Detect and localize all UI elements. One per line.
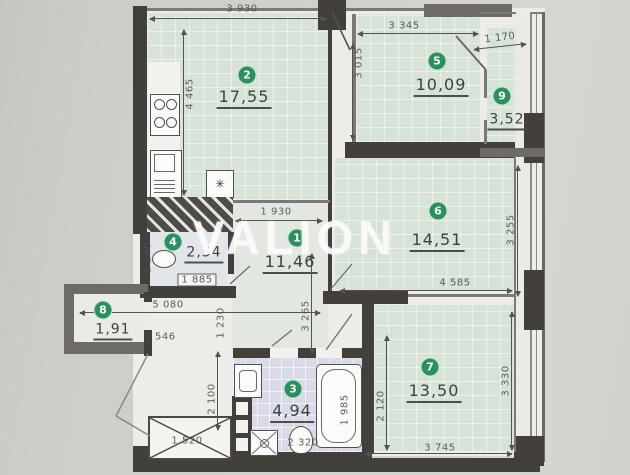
wall	[362, 302, 374, 454]
dimension-label: 5 080	[152, 300, 183, 311]
wall	[233, 200, 330, 203]
dimension-line	[358, 33, 478, 34]
wall	[408, 294, 515, 297]
wc-toilet-icon	[152, 250, 176, 268]
room-7-area: 13,50	[407, 381, 462, 403]
room-6-badge: 6	[429, 202, 448, 221]
room-9-badge: 9	[493, 87, 512, 106]
washing-machine-icon	[250, 430, 278, 456]
dimension-label: 1 885	[177, 274, 216, 287]
dimension-line	[340, 290, 512, 291]
window-glazing	[530, 12, 532, 462]
door-opening	[270, 348, 298, 358]
dimension-label: 3 265	[301, 300, 312, 331]
room-3-area: 4,94	[270, 401, 314, 423]
bathroom-sink-icon	[234, 364, 262, 398]
dimension-line	[80, 312, 320, 313]
dimension-label: 3 745	[424, 443, 455, 454]
wall	[64, 284, 74, 350]
wall	[480, 148, 544, 157]
dimension-label: 2 120	[376, 390, 387, 421]
wall	[64, 284, 148, 294]
dimension-label: 3 330	[501, 365, 512, 396]
room-2-area: 17,55	[217, 87, 272, 109]
dimension-label: 2 320	[287, 438, 318, 449]
dimension-label: 1 240	[143, 242, 154, 273]
wall	[368, 458, 540, 472]
dimension-label: 1 230	[216, 307, 227, 338]
dimension-line	[183, 30, 184, 195]
wall	[524, 270, 544, 330]
wall	[514, 158, 516, 452]
wall	[144, 292, 152, 302]
floor-plan: ✳	[0, 0, 630, 475]
wall	[484, 70, 487, 98]
room-6-area: 14,51	[410, 230, 465, 252]
dimension-line	[517, 166, 518, 296]
room-4-badge: 4	[164, 233, 183, 252]
loggia-strip	[516, 12, 530, 452]
dimension-label: 3 930	[226, 4, 257, 15]
vent-shaft	[232, 396, 252, 462]
room-8-badge: 8	[94, 301, 113, 320]
window-glazing	[536, 12, 537, 462]
room-3-badge: 3	[284, 380, 303, 399]
vent-icon: ✳	[206, 170, 234, 198]
dimension-label: 3 015	[354, 47, 365, 78]
wall	[133, 6, 147, 234]
dimension-label: 1 520	[171, 436, 202, 447]
wall	[346, 8, 426, 11]
room-5-area: 10,09	[414, 75, 469, 97]
dimension-label: 4 465	[185, 78, 196, 109]
window-lintel	[424, 4, 512, 17]
dimension-label: 1 985	[340, 394, 351, 425]
room-9-area: 3,52	[487, 112, 526, 131]
wall	[64, 342, 150, 354]
dimension-label: 2 100	[207, 383, 218, 414]
dimension-label: 3 255	[506, 214, 517, 245]
room-7-floor	[374, 305, 514, 452]
stove-icon	[150, 94, 180, 136]
kitchen-sink-unit-icon	[150, 150, 182, 198]
room-2-badge: 2	[238, 66, 257, 85]
room-5-badge: 5	[428, 52, 447, 71]
room-7-badge: 7	[421, 358, 440, 377]
dimension-label: 1 546	[144, 332, 175, 343]
valion-watermark: VALION	[193, 210, 397, 265]
window-glazing	[542, 12, 545, 462]
dimension-line	[150, 18, 326, 19]
wall	[140, 286, 236, 298]
dimension-label: 4 585	[439, 278, 470, 289]
dimension-label: 3 345	[388, 21, 419, 32]
door-opening	[316, 348, 342, 358]
room-8-area: 1,91	[93, 322, 132, 341]
